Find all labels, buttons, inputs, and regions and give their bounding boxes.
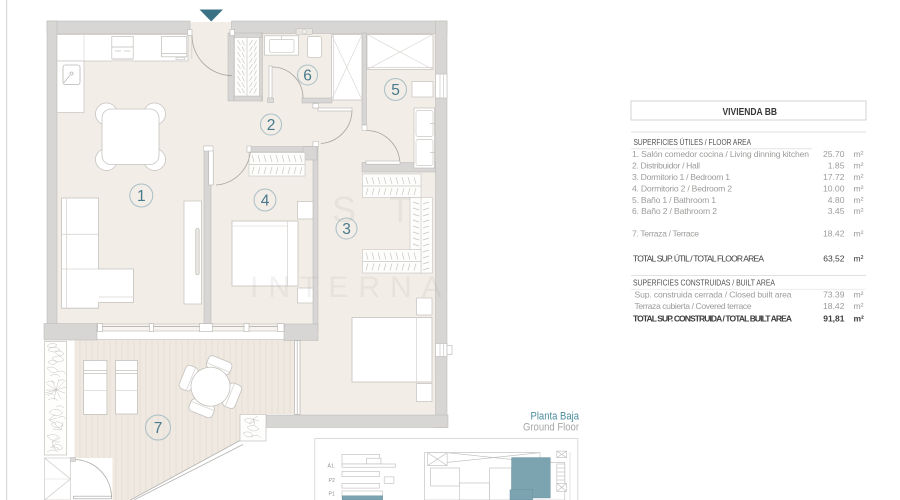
svg-text:SUPERFICIES CONSTRUIDAS / BUIL: SUPERFICIES CONSTRUIDAS / BUILT AREA xyxy=(633,277,775,287)
svg-text:7: 7 xyxy=(154,420,163,437)
svg-text:m²: m² xyxy=(854,229,864,239)
svg-text:5: 5 xyxy=(391,82,400,99)
svg-text:TOTAL SUP. CONSTRUIDA / TOTAL: TOTAL SUP. CONSTRUIDA / TOTAL BUILT AREA xyxy=(633,314,792,324)
svg-text:m²: m² xyxy=(854,289,864,299)
svg-text:4.80: 4.80 xyxy=(828,195,845,205)
svg-text:5. Baño 1 / Bathroom 1: 5. Baño 1 / Bathroom 1 xyxy=(632,195,716,205)
svg-text:m²: m² xyxy=(854,183,864,193)
svg-text:P2: P2 xyxy=(329,478,335,484)
svg-text:7. Terraza / Terrace: 7. Terraza / Terrace xyxy=(632,229,699,239)
svg-text:m²: m² xyxy=(854,314,865,324)
svg-text:4. Dormitorio 2 / Bedroom 2: 4. Dormitorio 2 / Bedroom 2 xyxy=(632,183,732,193)
svg-text:25.70: 25.70 xyxy=(823,149,845,159)
svg-text:m²: m² xyxy=(854,301,864,311)
svg-text:3. Dormitorio 1 / Bedroom 1: 3. Dormitorio 1 / Bedroom 1 xyxy=(632,172,730,182)
svg-text:1. Salón comedor cocina / Livi: 1. Salón comedor cocina / Living dinning… xyxy=(632,149,809,159)
svg-text:18.42: 18.42 xyxy=(823,229,845,239)
svg-text:Terraza cubierta / Covered ter: Terraza cubierta / Covered terrace xyxy=(635,301,752,311)
svg-text:SUPERFICIES ÚTILES / FLOOR ARE: SUPERFICIES ÚTILES / FLOOR AREA xyxy=(634,137,752,147)
svg-text:m²: m² xyxy=(854,149,864,159)
svg-text:3.45: 3.45 xyxy=(828,206,845,216)
svg-text:4: 4 xyxy=(261,193,270,210)
svg-text:73.39: 73.39 xyxy=(823,289,845,299)
svg-text:1.85: 1.85 xyxy=(828,161,845,171)
svg-text:2. Distribuidor / Hall: 2. Distribuidor / Hall xyxy=(632,161,700,171)
svg-text:Ground Floor: Ground Floor xyxy=(523,421,579,433)
svg-text:63,52: 63,52 xyxy=(823,253,845,263)
svg-text:18.42: 18.42 xyxy=(823,301,845,311)
svg-text:S T: S T xyxy=(332,189,423,230)
svg-text:2: 2 xyxy=(267,117,276,134)
svg-text:m²: m² xyxy=(854,161,864,171)
svg-text:Á1.: Á1. xyxy=(328,463,336,470)
svg-text:P1: P1 xyxy=(329,492,335,498)
svg-text:Sup. construida cerrada / Clos: Sup. construida cerrada / Closed built a… xyxy=(635,289,792,299)
svg-text:1: 1 xyxy=(137,188,146,205)
svg-text:m²: m² xyxy=(854,253,864,263)
svg-text:VIVIENDA BB: VIVIENDA BB xyxy=(723,107,778,118)
svg-text:91,81: 91,81 xyxy=(823,314,845,324)
svg-text:6: 6 xyxy=(303,68,312,85)
svg-text:6. Baño 2 / Bathroom 2: 6. Baño 2 / Bathroom 2 xyxy=(632,206,717,216)
svg-text:17.72: 17.72 xyxy=(823,172,845,182)
svg-text:10.00: 10.00 xyxy=(823,183,845,193)
svg-text:m²: m² xyxy=(854,195,864,205)
svg-text:TOTAL SUP. ÚTIL / TOTAL FLOOR: TOTAL SUP. ÚTIL / TOTAL FLOOR AREA xyxy=(633,253,764,263)
svg-text:m²: m² xyxy=(854,172,864,182)
svg-text:m²: m² xyxy=(854,206,864,216)
